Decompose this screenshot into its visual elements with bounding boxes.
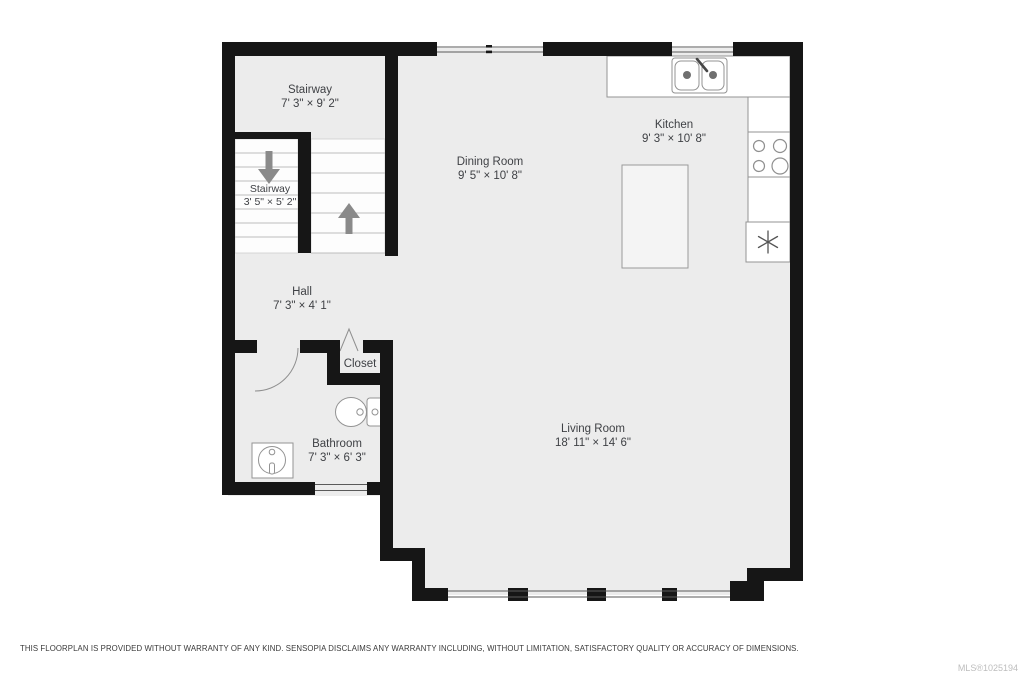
toilet-icon <box>336 398 384 427</box>
room-label-living: Living Room <box>561 423 625 435</box>
room-label-bathroom: Bathroom <box>312 438 362 450</box>
room-dims-bathroom: 7' 3" × 6' 3" <box>308 452 366 464</box>
fridge-snowflake-icon <box>746 222 790 262</box>
mls-number: MLS®1025194 <box>958 663 1018 673</box>
room-dims-stairway-lower: 3' 5" × 5' 2" <box>244 196 297 208</box>
footer: THIS FLOORPLAN IS PROVIDED WITHOUT WARRA… <box>20 644 1018 673</box>
room-label-hall: Hall <box>292 286 312 298</box>
room-dims-dining: 9' 5" × 10' 8" <box>458 170 522 182</box>
kitchen-sink-icon <box>672 58 727 93</box>
room-label-dining: Dining Room <box>457 156 523 168</box>
room-label-stairway-upper: Stairway <box>288 84 332 96</box>
room-dims-living: 18' 11" × 14' 6" <box>555 437 631 449</box>
room-label-kitchen: Kitchen <box>655 119 693 131</box>
room-label-closet: Closet <box>344 358 377 370</box>
floorplan-canvas: Stairway 7' 3" × 9' 2" Stairway 3' 5" × … <box>0 0 1024 682</box>
room-label-stairway-lower: Stairway <box>250 183 291 195</box>
bathroom-sink-icon <box>252 443 293 478</box>
kitchen-island <box>622 165 688 268</box>
room-dims-stairway-upper: 7' 3" × 9' 2" <box>281 98 339 110</box>
room-dims-hall: 7' 3" × 4' 1" <box>273 300 331 312</box>
room-dims-kitchen: 9' 3" × 10' 8" <box>642 133 706 145</box>
disclaimer-text: THIS FLOORPLAN IS PROVIDED WITHOUT WARRA… <box>20 644 799 653</box>
floorplan-page: Stairway 7' 3" × 9' 2" Stairway 3' 5" × … <box>0 0 1024 682</box>
